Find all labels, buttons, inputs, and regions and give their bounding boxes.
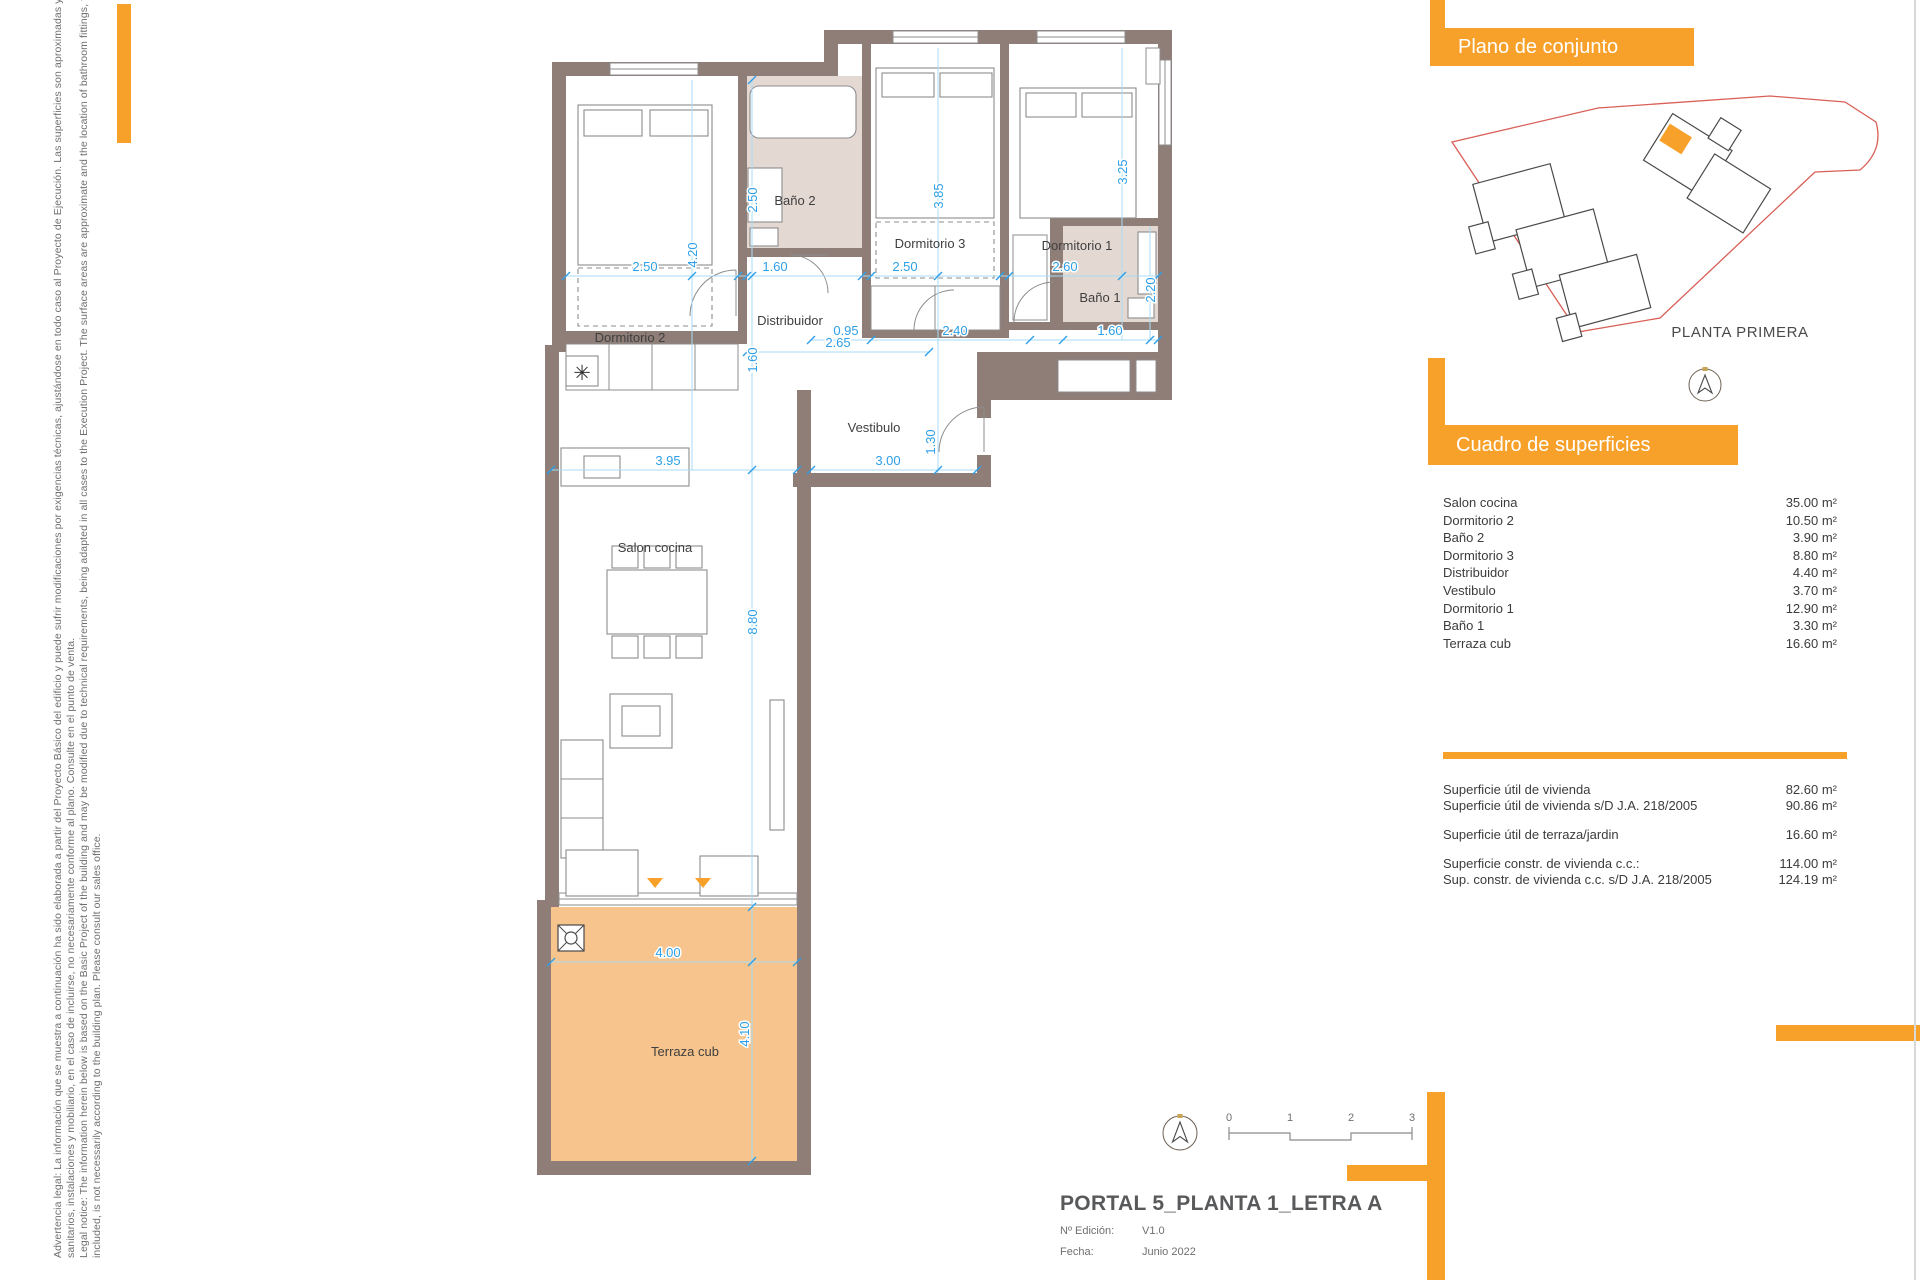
- room-label-bano1: Baño 1: [1079, 290, 1120, 305]
- summary-row: Superficie útil de vivienda82.60 m²: [1443, 782, 1837, 798]
- sheet-right-border: [1914, 0, 1916, 1280]
- room-label-bano2: Baño 2: [774, 193, 815, 208]
- floorplan-sheet: Advertencia legal: La información que se…: [0, 0, 1920, 1280]
- surfaces-header: Cuadro de superficies: [1428, 425, 1738, 465]
- dim-salon-width: 3.95: [655, 453, 680, 468]
- summary-value: 90.86 m²: [1786, 798, 1837, 814]
- title-block: PORTAL 5_PLANTA 1_LETRA A Nº Edición: V1…: [1060, 1192, 1383, 1258]
- edition-row: Nº Edición: V1.0: [1060, 1225, 1383, 1237]
- dim-hall-a: 0.95: [833, 323, 858, 338]
- accent-bar-siteplan-l: [1430, 0, 1445, 30]
- surface-row: Baño 23.90 m²: [1443, 529, 1837, 547]
- summary-label: Superficie útil de vivienda: [1443, 782, 1590, 798]
- dim-vestibulo-width: 3.00: [875, 453, 900, 468]
- scale-tick-label: 3: [1409, 1112, 1415, 1124]
- surfaces-table: Salon cocina35.00 m² Dormitorio 210.50 m…: [1443, 494, 1837, 652]
- dim-b1-height: 2.20: [1143, 277, 1158, 302]
- summary-row: Superficie constr. de vivienda c.c.:114.…: [1443, 856, 1837, 872]
- tv-unit: [770, 700, 784, 830]
- accent-bar-bottom-horizontal: [1347, 1165, 1445, 1181]
- siteplan-header: Plano de conjunto: [1430, 28, 1694, 66]
- dim-distribuidor-height: 1.60: [745, 347, 760, 372]
- surface-label: Baño 1: [1443, 617, 1484, 635]
- surface-value: 16.60 m²: [1786, 635, 1837, 653]
- room-label-distribuidor: Distribuidor: [757, 313, 823, 328]
- scale-tick-label: 0: [1226, 1112, 1232, 1124]
- dim-b2-width: 1.60: [762, 259, 787, 274]
- surface-label: Vestibulo: [1443, 582, 1496, 600]
- surface-row: Dormitorio 210.50 m²: [1443, 512, 1837, 530]
- summary-label: Superficie constr. de vivienda c.c.:: [1443, 856, 1640, 872]
- room-label-dormitorio3: Dormitorio 3: [895, 236, 966, 251]
- date-row: Fecha: Junio 2022: [1060, 1246, 1383, 1258]
- site-plan: [1440, 92, 1910, 412]
- kitchen-sink: [584, 456, 620, 478]
- legal-text-line: sanitarios, instalaciones y mobiliario, …: [65, 638, 77, 1258]
- north-compass-icon: [1689, 367, 1721, 401]
- summary-row: Superficie útil de vivienda s/D J.A. 218…: [1443, 798, 1837, 814]
- dim-b1-width: 1.60: [1097, 323, 1122, 338]
- room-label-dormitorio1: Dormitorio 1: [1042, 238, 1113, 253]
- dining-table: [607, 570, 707, 634]
- summary-value: 114.00 m²: [1779, 856, 1837, 872]
- scale-tick-label: 1: [1287, 1112, 1293, 1124]
- edition-value: V1.0: [1142, 1225, 1165, 1237]
- surface-label: Baño 2: [1443, 529, 1484, 547]
- summary-row: Sup. constr. de vivienda c.c. s/D J.A. 2…: [1443, 872, 1837, 888]
- dim-salon-height: 8.80: [745, 609, 760, 634]
- floor-caption: PLANTA PRIMERA: [1620, 324, 1860, 341]
- surfaces-header-label: Cuadro de superficies: [1456, 434, 1651, 457]
- dim-d1-height: 3.25: [1115, 159, 1130, 184]
- surface-value: 35.00 m²: [1786, 494, 1837, 512]
- accent-bar-right-edge: [1776, 1025, 1920, 1041]
- surface-label: Distribuidor: [1443, 564, 1509, 582]
- edition-label: Nº Edición:: [1060, 1225, 1142, 1237]
- surface-value: 12.90 m²: [1786, 600, 1837, 618]
- surface-value: 4.40 m²: [1793, 564, 1837, 582]
- surface-row: Terraza cub16.60 m²: [1443, 635, 1837, 653]
- legal-text-line: included, is not necessarily according t…: [91, 833, 103, 1258]
- surface-value: 10.50 m²: [1786, 512, 1837, 530]
- dim-d3-width: 2.50: [892, 259, 917, 274]
- date-label: Fecha:: [1060, 1246, 1142, 1258]
- room-label-salon: Salon cocina: [618, 540, 693, 555]
- summary-value: 124.19 m²: [1778, 872, 1837, 888]
- surface-label: Dormitorio 3: [1443, 547, 1514, 565]
- surface-row: Salon cocina35.00 m²: [1443, 494, 1837, 512]
- dim-b2-height: 2.50: [745, 187, 760, 212]
- room-label-vestibulo: Vestibulo: [848, 420, 901, 435]
- scale-tick-label: 2: [1348, 1112, 1354, 1124]
- legal-text-line: Advertencia legal: La información que se…: [52, 0, 64, 1258]
- floor-plan: ✳ Dormitorio 2 Baño 2 Dormitorio 3: [535, 25, 1200, 1190]
- surface-row: Dormitorio 38.80 m²: [1443, 547, 1837, 565]
- surface-row: Baño 13.30 m²: [1443, 617, 1837, 635]
- site-building-cluster-right: [1639, 95, 1789, 233]
- dim-terraza-width: 4.00: [655, 945, 680, 960]
- summary-table: Superficie útil de vivienda82.60 m² Supe…: [1443, 782, 1837, 888]
- summary-label: Sup. constr. de vivienda c.c. s/D J.A. 2…: [1443, 872, 1712, 888]
- summary-divider-bar: [1443, 752, 1847, 759]
- dim-hall-b: 2.40: [942, 323, 967, 338]
- surface-row: Vestibulo3.70 m²: [1443, 582, 1837, 600]
- surface-row: Distribuidor4.40 m²: [1443, 564, 1837, 582]
- scale-bar-line: [1229, 1127, 1412, 1140]
- summary-label: Superficie útil de terraza/jardin: [1443, 827, 1619, 843]
- surface-value: 3.30 m²: [1793, 617, 1837, 635]
- dim-d3-height: 3.85: [931, 183, 946, 208]
- summary-row: Superficie útil de terraza/jardin16.60 m…: [1443, 827, 1837, 843]
- surface-value: 3.70 m²: [1793, 582, 1837, 600]
- dim-vestibulo-height: 1.30: [923, 429, 938, 454]
- sofa: [561, 740, 603, 858]
- room-label-dormitorio2: Dormitorio 2: [595, 330, 666, 345]
- drain-icon: [558, 925, 584, 951]
- surface-value: 8.80 m²: [1793, 547, 1837, 565]
- surface-row: Dormitorio 112.90 m²: [1443, 600, 1837, 618]
- drawing-title: PORTAL 5_PLANTA 1_LETRA A: [1060, 1192, 1383, 1216]
- surface-label: Dormitorio 2: [1443, 512, 1514, 530]
- surface-label: Salon cocina: [1443, 494, 1517, 512]
- summary-value: 82.60 m²: [1786, 782, 1837, 798]
- dim-d1-width: 2.60: [1052, 259, 1077, 274]
- dim-d2-width: 2.50: [632, 259, 657, 274]
- room-label-terraza: Terraza cub: [651, 1044, 719, 1059]
- surface-label: Dormitorio 1: [1443, 600, 1514, 618]
- dim-terraza-height: 4.10: [737, 1021, 752, 1046]
- summary-value: 16.60 m²: [1786, 827, 1837, 843]
- summary-label: Superficie útil de vivienda s/D J.A. 218…: [1443, 798, 1697, 814]
- surface-label: Terraza cub: [1443, 635, 1511, 653]
- accent-bar-top-left: [117, 4, 131, 143]
- date-value: Junio 2022: [1142, 1246, 1196, 1258]
- bathtub: [750, 86, 856, 138]
- legal-text-line: Legal notice: The information herein bel…: [78, 0, 90, 1258]
- siteplan-header-label: Plano de conjunto: [1458, 36, 1618, 59]
- toilet: [750, 228, 778, 246]
- dim-d2-height: 4.20: [685, 242, 700, 267]
- heater-icon: ✳: [573, 362, 591, 385]
- surface-value: 3.90 m²: [1793, 529, 1837, 547]
